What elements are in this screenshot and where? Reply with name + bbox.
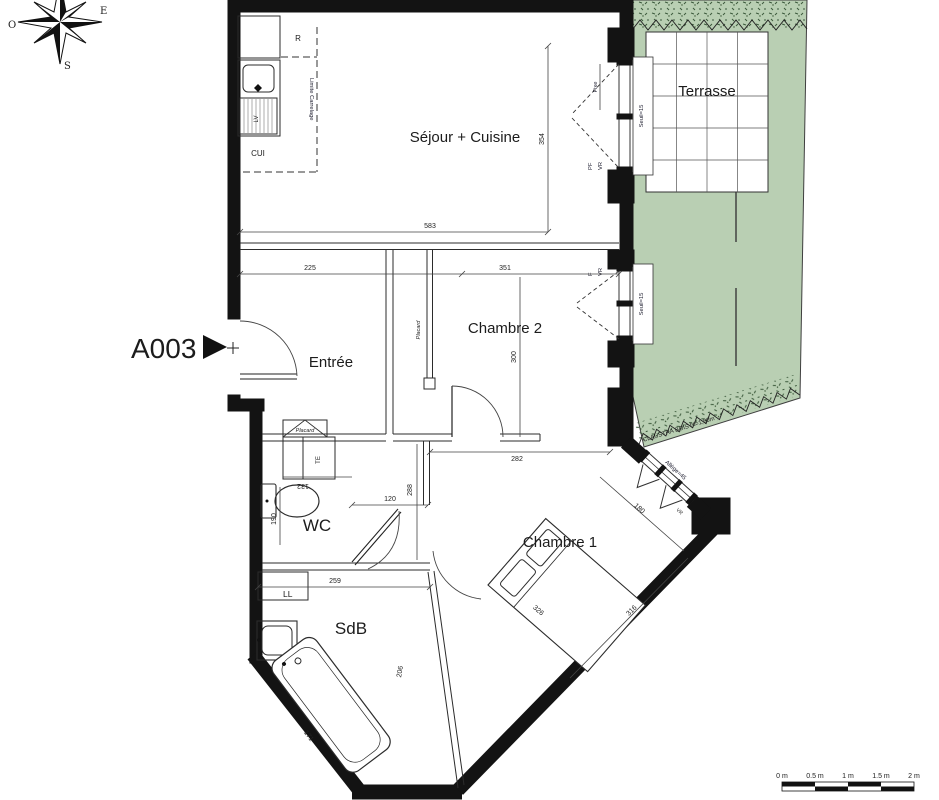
wall-pier [608, 341, 634, 367]
unit-label-group: A003 [131, 333, 227, 364]
terrace: Terrasse [646, 32, 768, 192]
entry-door-leaf [240, 374, 297, 379]
room-label-wc: WC [303, 516, 331, 535]
doors [227, 321, 503, 599]
dim-line-225-351 [237, 271, 622, 277]
seuil-ch2-label: Seuil=15 [639, 293, 645, 316]
compass-star-shading [18, 0, 102, 64]
toilet-bowl [275, 485, 319, 517]
tile-limit-label: Limite Carrelage [308, 78, 314, 121]
wall-pier [608, 388, 633, 446]
room-label-entree: Entrée [309, 354, 353, 371]
wall-left-mid [250, 405, 262, 663]
kitchen: LV CUI R Limite Carrelage [238, 16, 317, 172]
room-label-terrasse: Terrasse [678, 83, 736, 100]
wall-pier [608, 28, 634, 62]
entry-door-swing [240, 321, 297, 376]
dim-line-583 [237, 229, 551, 235]
vr-ch2-label: VR [598, 268, 604, 276]
floor-plan: CLAUSTRA BOIS ht=1,80m Terrasse [0, 0, 939, 800]
dim-132: 132 [297, 482, 309, 489]
washer-label: LL [283, 589, 293, 599]
placard-ch2-label: Placard [416, 320, 422, 340]
unit-arrow-icon [203, 335, 227, 359]
scale-seg [881, 787, 914, 792]
dim-line-282 [427, 449, 613, 455]
mullion [617, 266, 632, 271]
scale-seg [848, 782, 881, 787]
scale-1: 1 m [842, 773, 854, 780]
scale-seg [782, 782, 815, 787]
entree-shelf [283, 437, 303, 479]
dim-583: 583 [424, 223, 436, 230]
dim-351: 351 [499, 265, 511, 272]
toilet-valve [266, 500, 269, 503]
mullion [617, 336, 632, 341]
mullion [617, 301, 632, 306]
placard-ch2-end [424, 378, 435, 389]
compass-west: O [8, 20, 16, 31]
entry-door-axis [227, 342, 239, 354]
wall-pier [608, 170, 634, 203]
dim-300: 300 [511, 351, 518, 363]
pf-label: PF [588, 162, 594, 170]
washbasin-faucet [257, 638, 261, 642]
placard-entree-label: Placard [296, 428, 316, 434]
dim-190: 190 [271, 513, 278, 525]
sejour-door-swing [572, 64, 619, 168]
compass-rose: O E S [8, 0, 107, 72]
scale-15: 1.5 m [872, 773, 890, 780]
room-label-sejour: Séjour + Cuisine [410, 129, 520, 146]
dim-282: 282 [511, 456, 523, 463]
wall-sdb-ch1 [428, 571, 464, 788]
dishwasher-label: LV [254, 116, 260, 123]
seuil-sejour-label: Seuil=15 [639, 105, 645, 128]
ch2-door-opening [452, 432, 500, 443]
scale-seg [815, 787, 848, 792]
ch2-door-swing [452, 386, 503, 437]
elec-panel-label: TE [316, 456, 322, 464]
ch1-door-swing [433, 551, 481, 599]
wall-top [231, 0, 632, 12]
wall-sejour-south [240, 243, 619, 250]
kitchen-counter [238, 16, 280, 58]
wall-wc-east [424, 441, 430, 505]
compass-east: E [100, 6, 107, 17]
fixe-label: Fixe [593, 82, 599, 93]
mullion [617, 114, 632, 119]
unit-label: A003 [131, 333, 196, 364]
compass-south: S [64, 61, 71, 72]
cooktop-label: CUI [251, 149, 265, 158]
scale-05: 0.5 m [806, 773, 824, 780]
room-label-chambre2: Chambre 2 [468, 320, 542, 337]
dim-259: 259 [329, 578, 341, 585]
dim-288: 288 [407, 484, 414, 496]
wc-door-leaf [352, 509, 401, 565]
dim-180: 180 [632, 502, 645, 515]
sink-drain [254, 84, 262, 92]
wall-entree-ch2 [386, 250, 393, 434]
dim-225: 225 [304, 265, 316, 272]
door-jamb [228, 311, 240, 319]
ch2-window-swing [577, 271, 619, 339]
placard-ch2-front [427, 250, 433, 383]
dim-line-259 [255, 584, 433, 590]
room-label-chambre1: Chambre 1 [523, 534, 597, 551]
vr-sejour-label: VR [598, 162, 604, 170]
wall-wc-south [262, 563, 430, 570]
mullion [617, 167, 632, 172]
dim-206: 206 [396, 665, 405, 678]
scale-0: 0 m [776, 773, 788, 780]
room-label-sdb: SdB [335, 619, 367, 638]
dim-354: 354 [539, 133, 546, 145]
scale-bar: 0 m 0.5 m 1 m 1.5 m 2 m [776, 773, 920, 791]
scale-2: 2 m [908, 773, 920, 780]
fridge-label: R [295, 34, 301, 43]
dim-120: 120 [384, 496, 396, 503]
vr-ch1-label: VR [675, 507, 684, 516]
